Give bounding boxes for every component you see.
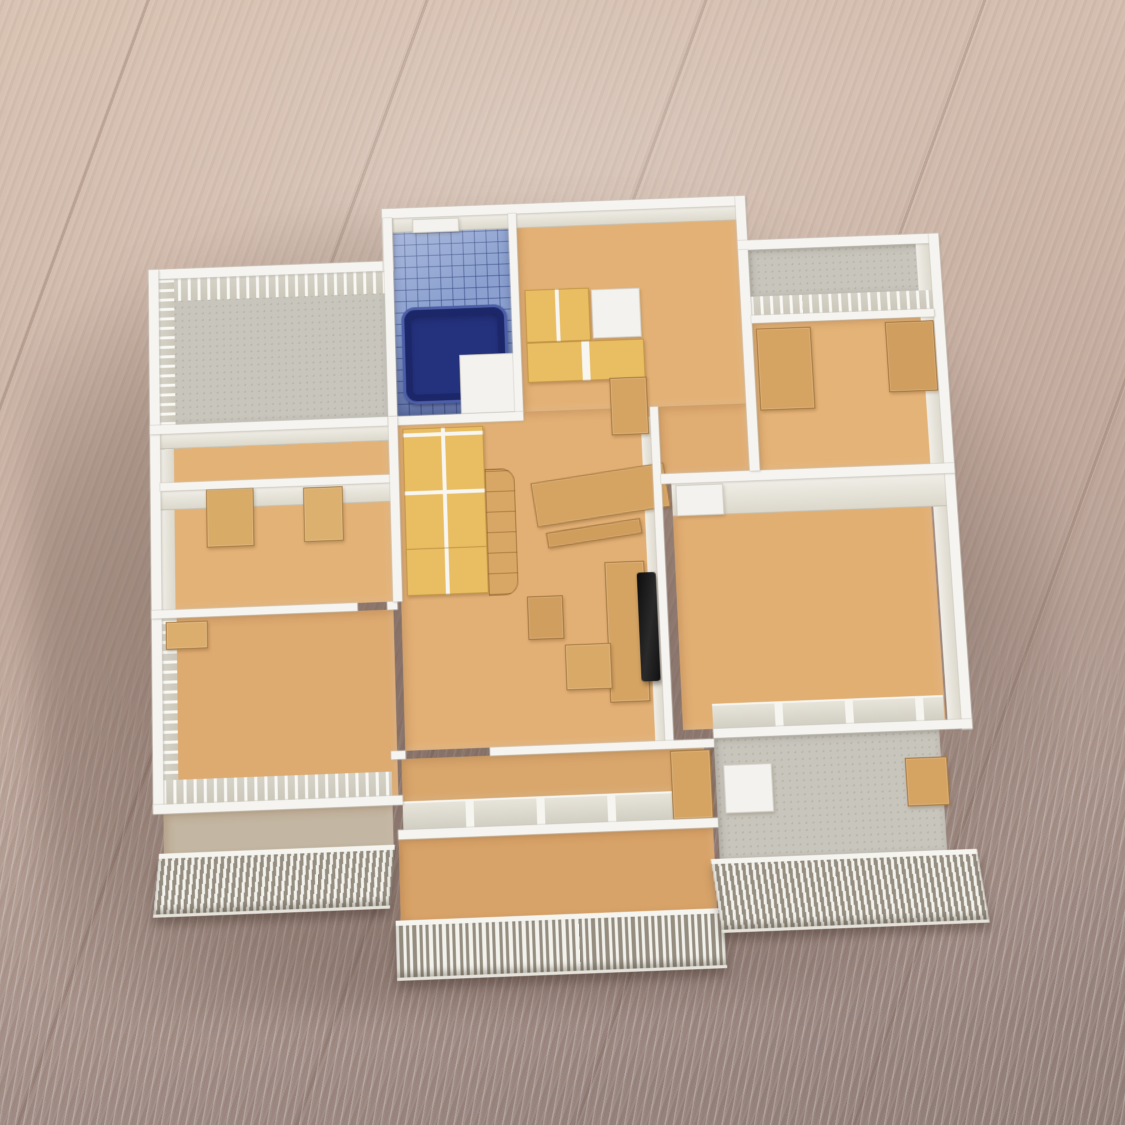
kitchen-appliance xyxy=(591,288,642,339)
wardrobe-yellow-lower xyxy=(406,546,489,596)
top-right-balcony-floor xyxy=(748,243,933,297)
hall-east-floor xyxy=(658,403,750,474)
right-bedroom-door-leaf xyxy=(675,483,724,516)
top-right-wardrobe xyxy=(756,327,816,411)
photo-canvas: White foam-board architectural scale mod… xyxy=(0,0,1125,1125)
corridor-bedroom-wall-stub xyxy=(387,601,397,609)
bathroom-window-frame xyxy=(412,217,459,233)
balcony-left-railing xyxy=(153,845,395,918)
architectural-model xyxy=(57,176,1085,1021)
balcony-center-railing xyxy=(396,908,728,981)
bathroom-vanity-block xyxy=(459,353,516,414)
side-table xyxy=(565,643,613,691)
top-right-cabinet xyxy=(885,320,939,392)
balcony-right-railing xyxy=(711,849,990,933)
cardboard-stool xyxy=(527,595,565,640)
kitchen-upper-cabinet xyxy=(524,288,591,343)
balcony-divider-wall xyxy=(670,749,714,819)
wardrobe-yellow-doors xyxy=(402,426,487,551)
curved-shelf-column xyxy=(485,468,519,596)
sunroom-west-window-face xyxy=(158,279,175,426)
left-bedroom-step xyxy=(166,621,208,650)
corridor-west-face xyxy=(160,433,176,611)
living-south-wall-stub xyxy=(391,751,405,760)
balcony-white-cabinet xyxy=(723,763,774,814)
balcony-cardboard-box xyxy=(905,756,951,806)
kitchen-counter-return xyxy=(609,377,649,436)
closet-door-panel-large xyxy=(206,488,254,548)
closet-door-panel-small xyxy=(303,486,344,542)
corridor-room-floor xyxy=(160,425,393,610)
